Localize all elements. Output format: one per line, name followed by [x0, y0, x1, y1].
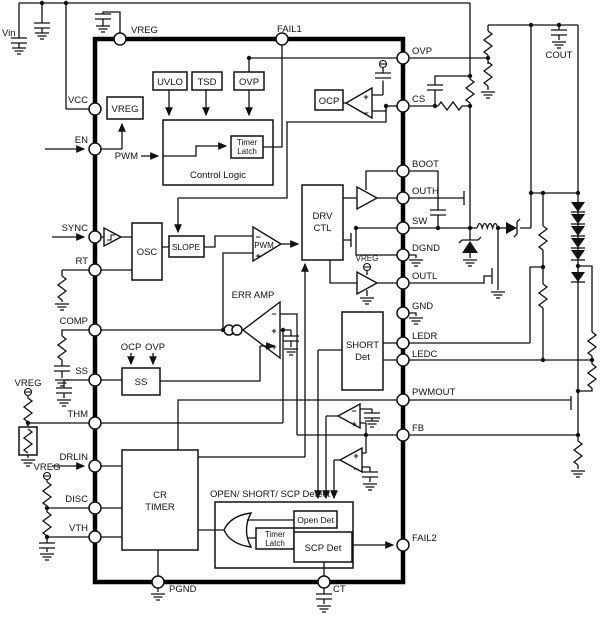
svg-text:TIMER: TIMER — [145, 502, 175, 513]
svg-text:CTL: CTL — [314, 223, 332, 234]
svg-text:+: + — [271, 342, 276, 352]
pin-rt-label: RT — [76, 256, 89, 267]
pin-fail2 — [397, 539, 409, 551]
block-uvlo: UVLO — [157, 77, 183, 88]
block-open-det: Open Det — [297, 515, 334, 525]
pin-ledc-label: LEDC — [412, 349, 437, 360]
pin-comp-label: COMP — [60, 316, 89, 327]
pin-ledr — [397, 337, 409, 349]
block-timer-latch-2: Timer — [265, 530, 285, 539]
svg-text:Latch: Latch — [265, 539, 285, 548]
pin-disc — [89, 502, 101, 514]
pin-ledr-label: LEDR — [412, 331, 437, 342]
pin-gnd-label: GND — [412, 301, 433, 312]
pin-ovp-label: OVP — [412, 46, 432, 57]
pin-outh-label: OUTH — [412, 186, 439, 197]
pin-en-label: EN — [75, 135, 88, 146]
svg-text:Det: Det — [355, 352, 370, 363]
block-timer-latch: Timer — [237, 138, 257, 147]
pin-outl — [397, 277, 409, 289]
ocp-arrow-label: OCP — [121, 342, 142, 353]
svg-text:+: + — [255, 251, 260, 261]
detect-section: OPEN/ SHORT/ SCP Detect Open Det Timer L… — [198, 489, 393, 576]
svg-text:+: + — [351, 419, 356, 429]
pin-fail2-label: FAIL2 — [412, 533, 437, 544]
svg-text:−: − — [351, 406, 356, 416]
pin-gnd — [397, 307, 409, 319]
cr-timer-section: CR TIMER — [101, 450, 198, 576]
control-logic: Control Logic Timer Latch PWM — [115, 45, 397, 185]
block-osc: OSC — [137, 247, 158, 258]
vreg-outl-label: VREG — [356, 254, 379, 263]
pwm-input-label: PWM — [115, 151, 138, 162]
pin-ss-label: SS — [75, 366, 88, 377]
pin-ovp — [397, 52, 409, 64]
svg-text:+: + — [363, 92, 368, 102]
pin-pgnd — [152, 576, 164, 588]
block-scp-det: SCP Det — [305, 543, 342, 554]
block-cr-timer: CR — [153, 490, 167, 501]
pin-sync — [89, 231, 101, 243]
pin-disc-label: DISC — [65, 494, 88, 505]
pin-ct-label: CT — [333, 584, 346, 595]
pin-en — [89, 143, 101, 155]
pin-vcc-label: VCC — [68, 95, 88, 106]
pin-drlin — [89, 460, 101, 472]
block-control-logic: Control Logic — [190, 170, 246, 181]
pin-dgnd — [397, 249, 409, 261]
svg-text:+: + — [353, 451, 358, 461]
vreg-thm-label: VREG — [15, 378, 42, 389]
pin-outh — [397, 192, 409, 204]
pin-vth-label: VTH — [69, 523, 88, 534]
svg-text:−: − — [271, 309, 276, 319]
block-vreg: VREG — [112, 104, 139, 115]
detect-title: OPEN/ SHORT/ SCP Detect — [210, 489, 330, 500]
pin-fb — [397, 429, 409, 441]
pin-vth — [89, 531, 101, 543]
err-amp-label: ERR AMP — [232, 290, 275, 301]
protection-blocks: UVLO TSD OVP — [153, 58, 264, 115]
pin-vcc — [89, 103, 101, 115]
schematic-page: Vin VREG UVLO TSD OVP Control Logic Time… — [0, 0, 600, 621]
block-ss: SS — [135, 377, 148, 388]
block-ocp: OCP — [319, 96, 340, 107]
ovp-arrow-label: OVP — [145, 342, 165, 353]
block-diagram: Vin VREG UVLO TSD OVP Control Logic Time… — [0, 0, 600, 621]
pin-sync-label: SYNC — [62, 223, 89, 234]
svg-text:−: − — [363, 108, 368, 118]
pin-pwmout — [397, 394, 409, 406]
pin-thm — [89, 417, 101, 429]
pin-ct — [318, 576, 330, 588]
pin-outl-label: OUTL — [412, 271, 437, 282]
fb-comparators: − + + − — [178, 400, 397, 498]
pin-sw — [397, 222, 409, 234]
pin-pgnd-label: PGND — [169, 584, 197, 595]
pin-boot — [397, 165, 409, 177]
block-slope: SLOPE — [172, 242, 201, 252]
svg-text:Latch: Latch — [237, 147, 257, 156]
block-drv-ctl: DRV — [313, 211, 334, 222]
pin-rt — [89, 264, 101, 276]
ss-section: OCP OVP SS — [101, 342, 165, 395]
svg-text:+: + — [271, 326, 276, 336]
cout-label: COUT — [546, 50, 573, 61]
block-short-det: SHORT — [346, 340, 379, 351]
pin-vin-label: Vin — [2, 28, 16, 39]
pin-ledc — [397, 354, 409, 366]
pin-vreg-top — [114, 33, 126, 45]
vreg-disc-label: VREG — [34, 462, 61, 473]
pin-fail1-label: FAIL1 — [277, 24, 302, 35]
pin-pwmout-label: PWMOUT — [412, 387, 455, 398]
pin-cs — [397, 100, 409, 112]
svg-text:−: − — [353, 464, 358, 474]
block-tsd: TSD — [198, 77, 217, 88]
pin-vreg-top-label: VREG — [131, 25, 158, 36]
pin-ss — [89, 374, 101, 386]
pin-cs-label: CS — [412, 94, 425, 105]
pin-dgnd-label: DGND — [412, 243, 440, 254]
block-ovp: OVP — [239, 77, 259, 88]
pin-boot-label: BOOT — [412, 159, 439, 170]
pin-fb-label: FB — [412, 423, 424, 434]
pin-drlin-label: DRLIN — [59, 452, 88, 463]
pin-comp — [89, 324, 101, 336]
block-pwm: PWM — [254, 241, 274, 250]
pin-sw-label: SW — [412, 216, 427, 227]
pin-thm-label: THM — [67, 409, 88, 420]
